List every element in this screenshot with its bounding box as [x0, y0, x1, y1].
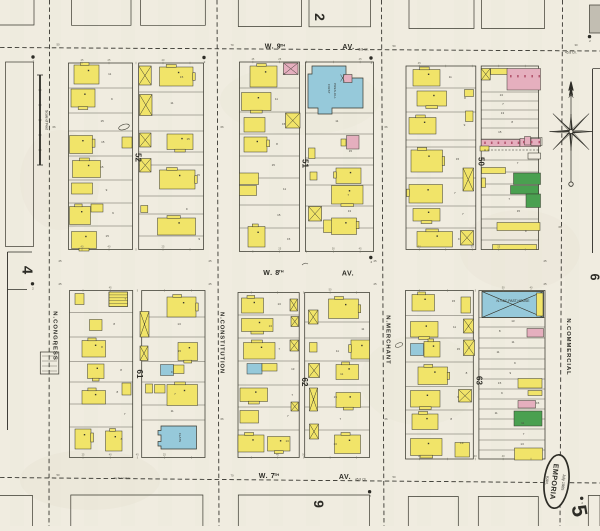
svg-text:66: 66: [558, 225, 562, 229]
svg-text:11: 11: [495, 411, 498, 415]
svg-text:66: 66: [52, 125, 56, 129]
svg-text:50: 50: [56, 473, 60, 477]
svg-text:AV.: AV.: [342, 44, 354, 51]
svg-text:11: 11: [361, 327, 364, 331]
svg-text:15: 15: [282, 122, 286, 126]
svg-text:11: 11: [335, 119, 338, 123]
svg-text:51: 51: [301, 159, 310, 168]
svg-text:W. 8: W. 8: [263, 270, 279, 277]
svg-text:66: 66: [220, 417, 224, 421]
svg-text:70: 70: [230, 474, 234, 478]
svg-text:W. 7: W. 7: [259, 473, 275, 480]
svg-text:15: 15: [517, 209, 521, 213]
svg-text:FIRST: FIRST: [327, 84, 331, 94]
svg-text:15: 15: [498, 130, 502, 134]
svg-text:TH: TH: [280, 42, 285, 47]
svg-text:61: 61: [135, 370, 144, 379]
svg-text:25: 25: [58, 282, 62, 286]
svg-text:50: 50: [392, 475, 396, 479]
svg-text:13: 13: [285, 439, 289, 443]
svg-text:11: 11: [108, 72, 111, 76]
svg-text:N.MERCHANT: N.MERCHANT: [385, 315, 391, 365]
svg-text:11: 11: [453, 325, 456, 329]
svg-text:15: 15: [334, 395, 338, 399]
svg-text:62: 62: [300, 378, 309, 387]
svg-text:11: 11: [275, 97, 278, 101]
svg-text:25: 25: [543, 259, 547, 263]
svg-text:11: 11: [496, 350, 499, 354]
svg-text:11: 11: [336, 349, 339, 353]
svg-text:45.8 Ch.: 45.8 Ch.: [565, 51, 577, 55]
svg-text:11: 11: [340, 372, 343, 376]
svg-text:13: 13: [291, 367, 295, 371]
svg-text:50: 50: [56, 43, 60, 47]
svg-text:25: 25: [208, 282, 212, 286]
svg-text:52: 52: [134, 153, 143, 162]
svg-text:4: 4: [19, 266, 36, 275]
svg-text:25: 25: [373, 259, 377, 263]
svg-text:6: 6: [588, 274, 600, 281]
svg-text:9: 9: [311, 500, 327, 508]
svg-text:N.CONGRESS: N.CONGRESS: [52, 311, 58, 361]
svg-text:13: 13: [500, 93, 504, 97]
svg-text:11: 11: [511, 340, 514, 344]
svg-text:11: 11: [170, 101, 173, 105]
svg-text:15: 15: [180, 75, 184, 79]
svg-text:11: 11: [283, 72, 286, 76]
svg-text:15: 15: [349, 149, 353, 153]
svg-text:70: 70: [230, 43, 234, 47]
svg-text:N.COMMERCIAL: N.COMMERCIAL: [565, 318, 571, 375]
svg-text:N.Y.&C.PAST.HOUSE: N.Y.&C.PAST.HOUSE: [496, 299, 530, 303]
svg-text:25: 25: [543, 282, 547, 286]
svg-text:N.CONSTITUTION: N.CONSTITUTION: [219, 312, 225, 374]
svg-text:15: 15: [287, 237, 291, 241]
svg-text:TH: TH: [274, 472, 279, 477]
svg-text:66: 66: [52, 342, 56, 346]
svg-text:Cy.Tel.Cable: Cy.Tel.Cable: [114, 476, 131, 480]
svg-text:13: 13: [348, 209, 352, 213]
svg-text:66: 66: [384, 417, 388, 421]
svg-text:13: 13: [277, 302, 281, 306]
svg-text:25: 25: [208, 259, 212, 263]
svg-text:15: 15: [457, 347, 461, 351]
svg-text:15: 15: [178, 349, 182, 353]
svg-text:45.8 Ch.: 45.8 Ch.: [355, 478, 367, 482]
svg-text:15: 15: [498, 381, 502, 385]
svg-text:15: 15: [272, 163, 276, 167]
svg-text:63: 63: [475, 376, 484, 385]
svg-text:13: 13: [269, 324, 273, 328]
svg-text:11: 11: [449, 75, 452, 79]
svg-text:15: 15: [277, 213, 281, 217]
svg-text:TH: TH: [278, 269, 283, 274]
svg-text:FLATS: FLATS: [178, 433, 182, 442]
svg-text:66: 66: [384, 125, 388, 129]
svg-text:13: 13: [520, 442, 524, 446]
svg-text:11: 11: [171, 409, 174, 413]
svg-text:13: 13: [501, 111, 505, 115]
svg-text:W. 9: W. 9: [265, 44, 281, 51]
svg-text:45.8 Ch.: 45.8 Ch.: [357, 48, 369, 52]
svg-text:66: 66: [220, 125, 224, 129]
svg-text:15: 15: [536, 401, 540, 405]
svg-text:15: 15: [106, 234, 110, 238]
svg-text:13: 13: [177, 322, 181, 326]
svg-text:AV.: AV.: [339, 474, 351, 481]
svg-text:50: 50: [477, 157, 486, 166]
svg-text:15: 15: [100, 165, 104, 169]
svg-text:50: 50: [392, 44, 396, 48]
svg-text:30: 30: [574, 43, 578, 47]
svg-text:11: 11: [283, 187, 286, 191]
svg-text:13: 13: [511, 319, 515, 323]
svg-text:2: 2: [312, 13, 328, 21]
svg-text:25: 25: [373, 282, 377, 286]
svg-text:PRES.CH.: PRES.CH.: [333, 83, 337, 99]
svg-text:15: 15: [197, 173, 201, 177]
svg-text:AV.: AV.: [342, 271, 354, 278]
svg-text:13: 13: [460, 441, 464, 445]
svg-text:11: 11: [521, 421, 524, 425]
svg-text:Scale of Feet: Scale of Feet: [45, 110, 49, 130]
svg-text:15: 15: [452, 299, 456, 303]
svg-text:15: 15: [456, 157, 460, 161]
svg-text:13: 13: [333, 442, 337, 446]
svg-text:15: 15: [101, 119, 105, 123]
svg-text:25: 25: [58, 259, 62, 263]
svg-text:15: 15: [187, 137, 191, 141]
svg-text:15: 15: [101, 140, 105, 144]
